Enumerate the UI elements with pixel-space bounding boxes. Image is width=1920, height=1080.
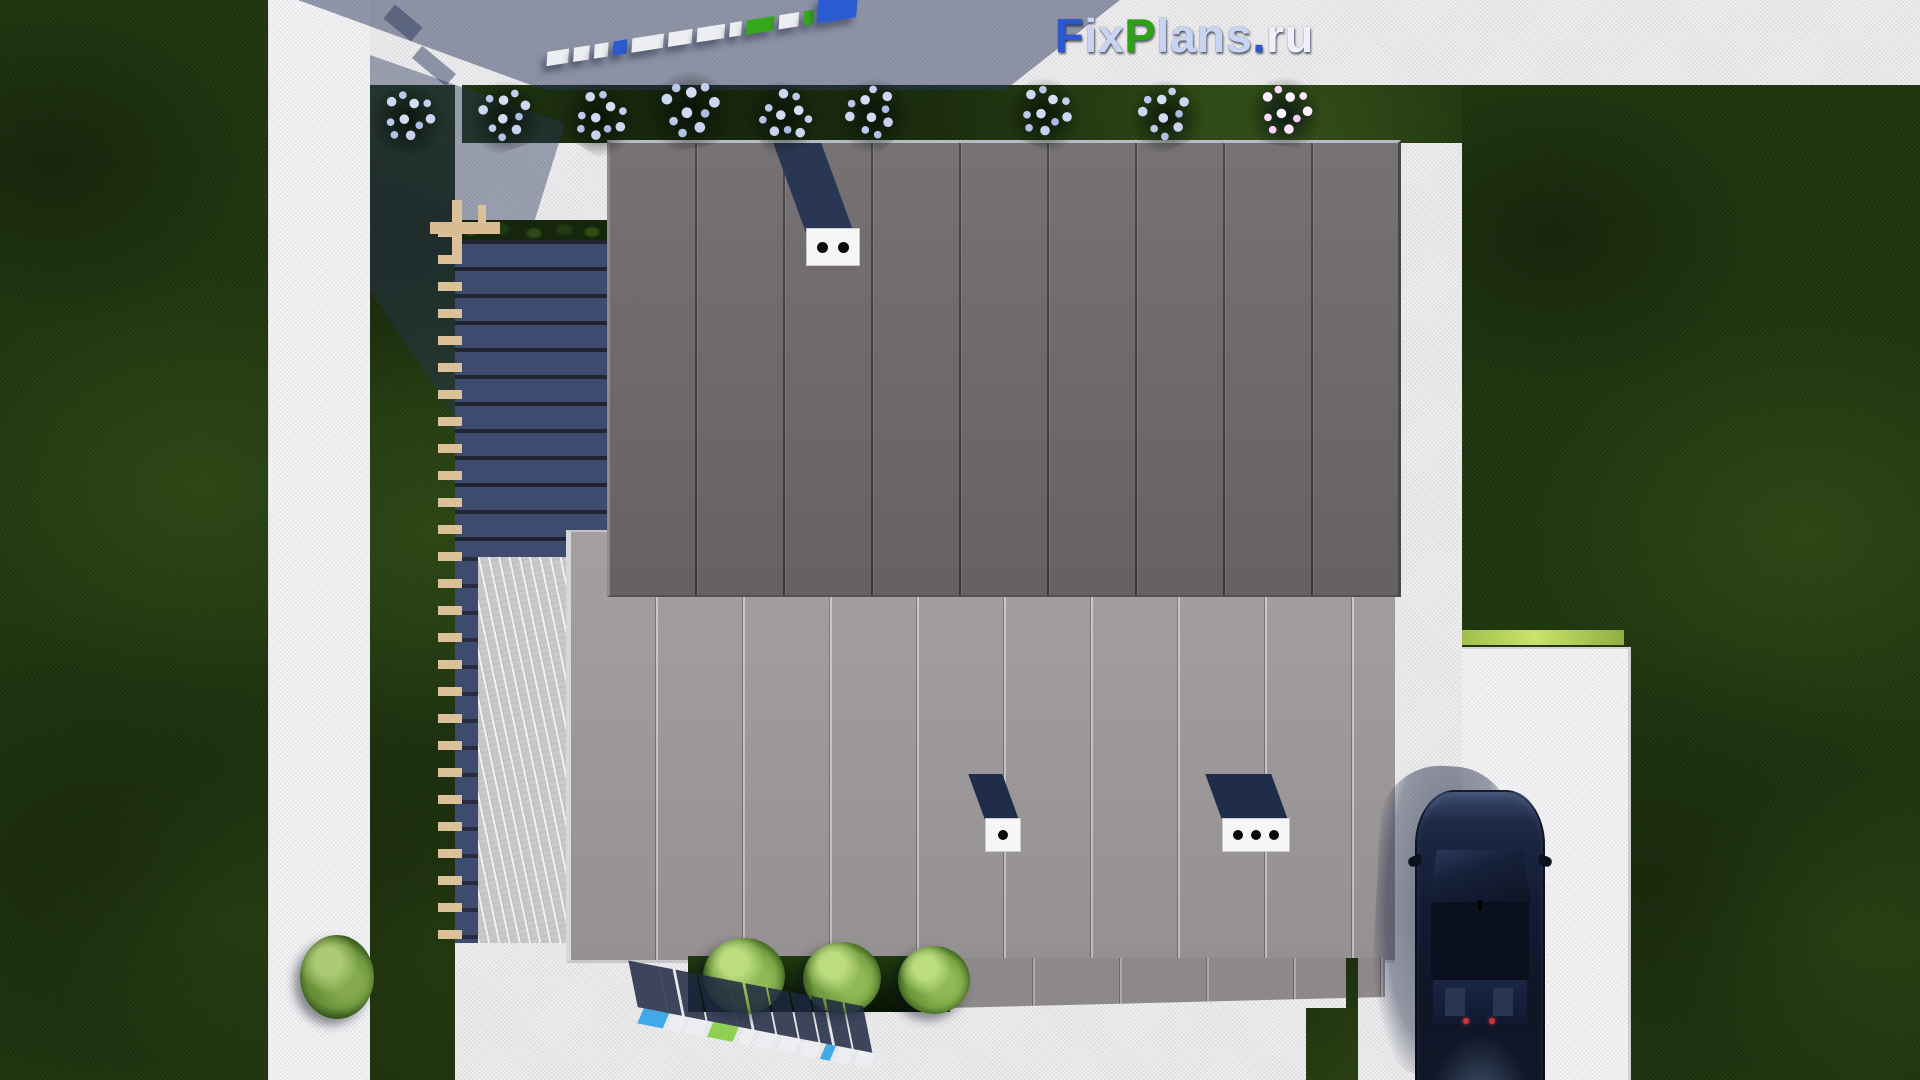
car-roof xyxy=(1431,902,1529,980)
logo-3d-letter-slab xyxy=(594,42,609,59)
watermark-part: F xyxy=(1055,9,1084,62)
taillight-right xyxy=(1489,1018,1495,1024)
logo-3d-letter-slab-green xyxy=(803,10,814,26)
logo-3d-letter-slab xyxy=(799,1040,821,1058)
vent-hole xyxy=(838,242,849,253)
logo-3d-letter-slab xyxy=(737,1028,755,1045)
pergola-posts xyxy=(438,228,462,940)
logo-3d-letter-slab-green xyxy=(707,1022,739,1042)
lawn-left xyxy=(0,0,268,1080)
logo-3d-letter-slab-blue xyxy=(820,1044,836,1061)
pergola-deck-upper xyxy=(455,240,607,557)
watermark-part: . xyxy=(1252,9,1266,62)
flower-bush xyxy=(371,82,446,152)
walkway-left xyxy=(268,0,372,1080)
lawn-sliver xyxy=(1346,958,1358,1010)
watermark-part: P xyxy=(1124,9,1156,62)
car-seat xyxy=(1445,988,1465,1016)
lawn-sunlit-edge xyxy=(1462,630,1624,645)
pergola-corner-beam xyxy=(430,222,500,234)
watermark-logo: FixPlans.ru xyxy=(1055,8,1314,63)
logo-3d-letter-slab xyxy=(777,1035,801,1053)
logo-3d-letter-slab xyxy=(729,21,742,37)
logo-3d-letter-slab xyxy=(573,45,590,62)
watermark-part: lans xyxy=(1156,9,1252,62)
vent-hole xyxy=(817,242,828,253)
watermark-part: ix xyxy=(1084,9,1124,62)
flower-bush xyxy=(1005,74,1085,150)
car-rear-window xyxy=(1433,980,1527,1024)
stone-patio xyxy=(478,557,566,943)
car-hood xyxy=(1423,792,1537,834)
car-windshield xyxy=(1429,850,1531,902)
roof-lower-fascia xyxy=(948,958,1385,1008)
car-antenna xyxy=(1478,900,1482,910)
car-mirror-right xyxy=(1537,854,1554,869)
logo-3d-letter-slab xyxy=(668,1014,686,1031)
flower-bush xyxy=(650,72,730,146)
watermark-part: ru xyxy=(1266,9,1314,62)
flower-bush-white xyxy=(1249,78,1320,144)
logo-3d-letter-slab-blue xyxy=(613,39,628,56)
vent-hole xyxy=(1269,830,1279,840)
brand-3d-letters-bottom xyxy=(627,1008,947,1080)
logo-3d-letter-slab-blue xyxy=(637,1008,669,1028)
parked-car xyxy=(1405,752,1555,1080)
logo-3d-letter-slab xyxy=(853,1050,875,1068)
vent-hole xyxy=(1233,830,1243,840)
taillight-left xyxy=(1463,1018,1469,1024)
car-seat xyxy=(1493,988,1513,1016)
chimney-vent-box xyxy=(1222,818,1290,852)
lawn-patch-bottom xyxy=(1306,1008,1358,1080)
chimney-vent-box xyxy=(985,818,1021,852)
car-body xyxy=(1415,790,1545,1080)
roof-upper xyxy=(607,140,1401,597)
flower-bush xyxy=(466,78,545,153)
bush xyxy=(300,935,374,1019)
chimney-vent-box xyxy=(806,228,860,266)
vent-hole xyxy=(998,830,1008,840)
logo-3d-letter-slab xyxy=(684,1017,708,1035)
logo-3d-letter-slab xyxy=(754,1031,778,1049)
car-trunk xyxy=(1427,1028,1533,1080)
aerial-render-scene: FixPlans.ru xyxy=(0,0,1920,1080)
logo-3d-letter-slab xyxy=(835,1047,855,1065)
pergola-corner-stub xyxy=(478,205,486,225)
bush xyxy=(898,946,970,1014)
vent-hole xyxy=(1251,830,1261,840)
